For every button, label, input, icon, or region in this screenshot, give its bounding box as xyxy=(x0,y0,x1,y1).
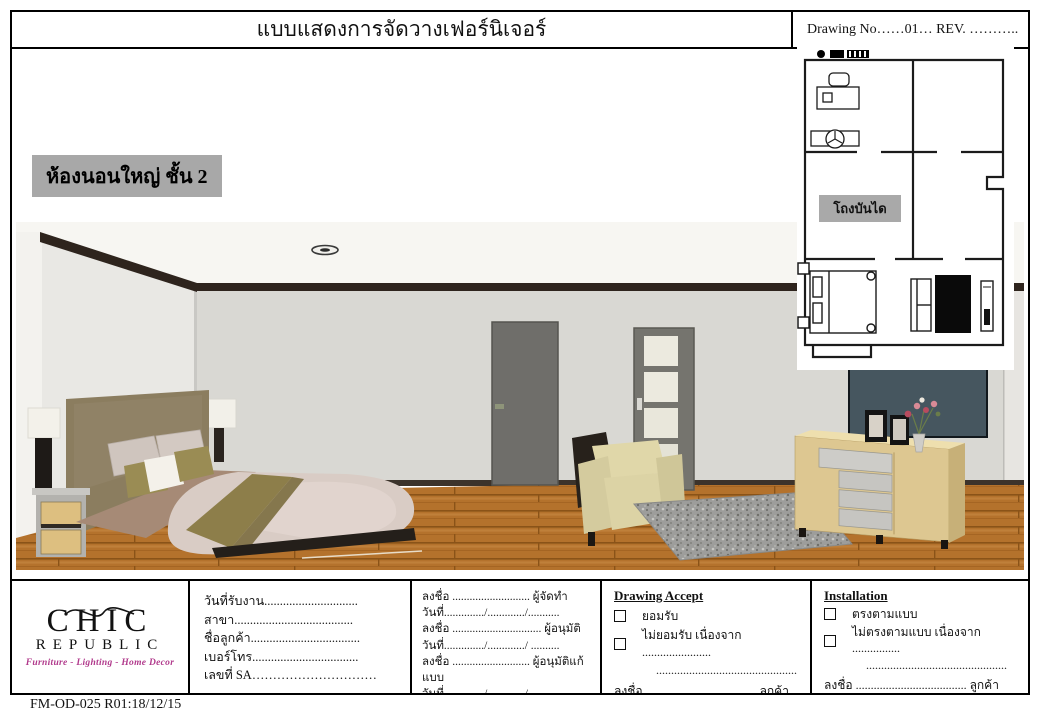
title-block: CHIC REPUBLIC Furniture - Lighting - Hom… xyxy=(12,579,1028,693)
option-reject-label: ไม่ยอมรับ เนื่องจาก ....................… xyxy=(642,627,802,660)
field-customer-name: ชื่อลูกค้า..............................… xyxy=(204,629,400,648)
plan-rug xyxy=(935,275,971,333)
sign-preparer: ลงชื่อ ........................... ผู้จั… xyxy=(422,589,594,605)
brand-tagline: Furniture - Lighting - Home Decor xyxy=(26,658,174,668)
field-branch: สาขา....................................… xyxy=(204,611,400,630)
sign-preparer-date: วันที่............../............./.....… xyxy=(422,605,594,621)
brand-name: CHIC xyxy=(47,606,154,636)
sign-approver-date: วันที่............../............./ ....… xyxy=(422,638,594,654)
reject-reason-line: ........................................… xyxy=(614,662,802,679)
installation-heading: Installation xyxy=(824,588,1020,604)
photo-frames xyxy=(865,410,909,445)
option-mismatch-label: ไม่ตรงตามแบบ เนื่องจาก ................ xyxy=(852,625,1020,656)
field-received-date: วันที่รับงาน............................… xyxy=(204,592,400,611)
form-code: FM-OD-025 R01:18/12/15 xyxy=(30,697,181,713)
sign-revision-approver: ลงชื่อ ........................... ผู้อน… xyxy=(422,654,594,686)
brand-logo: CHIC REPUBLIC Furniture - Lighting - Hom… xyxy=(12,581,188,693)
page-title: แบบแสดงการจัดวางเฟอร์นิเจอร์ xyxy=(257,13,547,46)
tv-sideboard xyxy=(795,430,965,549)
drawing-number: Drawing No……01… REV. ……….. xyxy=(807,22,1018,38)
option-match-label: ตรงตามแบบ xyxy=(852,607,918,623)
plan-tv-cabinet xyxy=(981,281,993,331)
page-frame: แบบแสดงการจัดวางเฟอร์นิเจอร์ Drawing No…… xyxy=(10,10,1030,695)
drawing-accept-section: Drawing Accept ยอมรับ ไม่ยอมรับ เนื่องจา… xyxy=(600,581,810,693)
sign-approver: ลงชื่อ ............................... ผ… xyxy=(422,621,594,637)
customer-sign-line: ลงชื่อ .................................… xyxy=(614,683,802,694)
door-solid xyxy=(492,322,558,485)
sign-revision-approver-date: วันที่............../............./ ....… xyxy=(422,686,594,693)
checkbox-reject[interactable] xyxy=(614,638,626,650)
drawing-accept-heading: Drawing Accept xyxy=(614,588,802,605)
downlight-icon xyxy=(312,246,338,255)
installation-section: Installation ตรงตามแบบ ไม่ตรงตามแบบ เนื่… xyxy=(810,581,1028,693)
checkbox-match[interactable] xyxy=(824,608,836,620)
stair-hall-label: โถงบันได xyxy=(832,200,886,216)
field-phone: เบอร์โทร................................… xyxy=(204,648,400,667)
field-sa-number: เลขที่ SA………………………… xyxy=(204,666,400,685)
checkbox-accept[interactable] xyxy=(614,610,626,622)
signatures: ลงชื่อ ........................... ผู้จั… xyxy=(410,581,600,693)
checkbox-mismatch[interactable] xyxy=(824,635,836,647)
mismatch-reason-line: ........................................… xyxy=(824,658,1020,674)
floorplan-inset: โถงบันได xyxy=(797,47,1014,370)
room-label: ห้องนอนใหญ่ ชั้น 2 xyxy=(32,155,222,197)
option-accept-label: ยอมรับ xyxy=(642,608,678,625)
brand-name-sub: REPUBLIC xyxy=(36,637,165,654)
customer-info: วันที่รับงาน............................… xyxy=(188,581,410,693)
table-lamp-left xyxy=(28,408,60,438)
header-bar: แบบแสดงการจัดวางเฟอร์นิเจอร์ Drawing No…… xyxy=(12,12,1028,49)
install-customer-sign-line: ลงชื่อ .................................… xyxy=(824,678,1020,693)
floorplan-image: โถงบันได xyxy=(797,47,1014,370)
plan-stair-hall-labelbox: โถงบันได xyxy=(819,195,901,222)
